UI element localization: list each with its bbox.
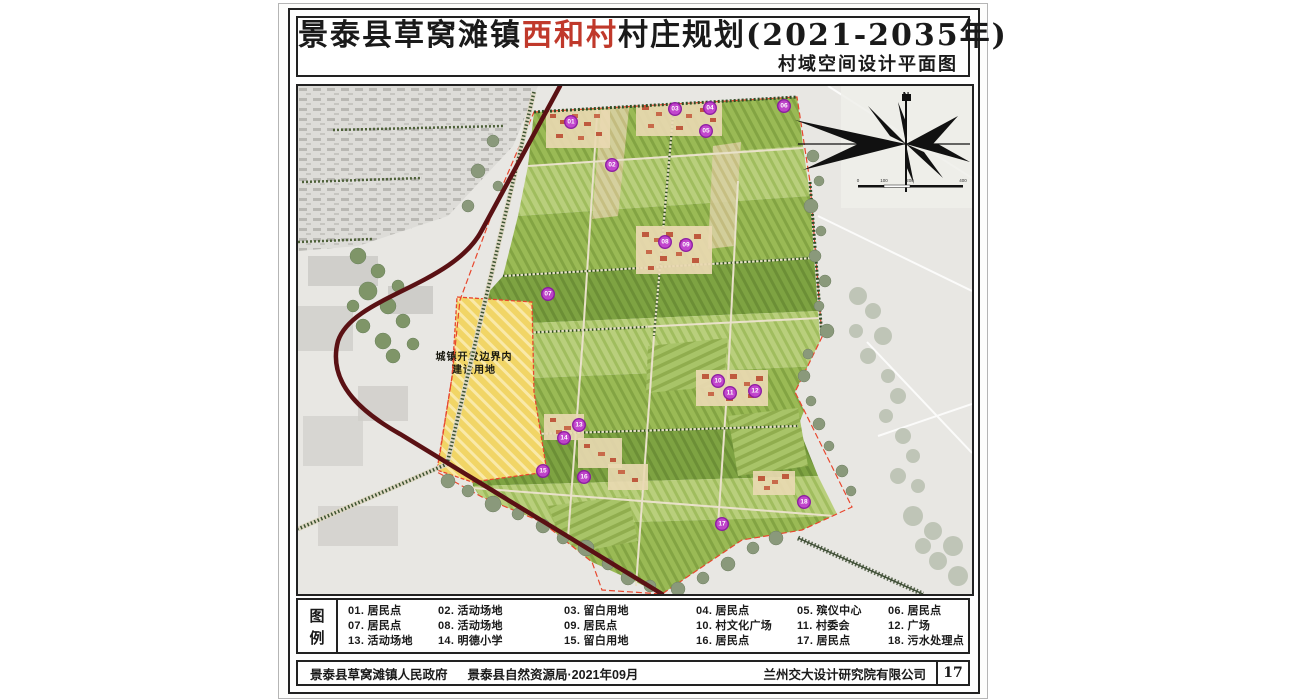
map-marker: 05	[700, 125, 713, 138]
svg-text:12: 12	[751, 388, 759, 395]
legend-item: 11. 村委会	[797, 619, 888, 634]
svg-text:15: 15	[539, 468, 547, 475]
legend-item: 16. 居民点	[696, 634, 797, 649]
map-marker: 09	[680, 239, 693, 252]
legend-item: 14. 明德小学	[438, 634, 564, 649]
svg-text:18: 18	[800, 499, 808, 506]
map-marker: 08	[659, 236, 672, 249]
footer-resources-bureau: 景泰县自然资源局·2021年09月	[468, 664, 639, 683]
compass-north-label: N	[903, 90, 910, 100]
legend-item: 06. 居民点	[888, 604, 968, 619]
legend-title: 图 例	[298, 600, 338, 652]
legend-item: 18. 污水处理点	[888, 634, 968, 649]
svg-text:16: 16	[580, 474, 588, 481]
legend-item: 03. 留白用地	[564, 604, 696, 619]
legend-item: 13. 活动场地	[348, 634, 438, 649]
legend-item: 05. 殡仪中心	[797, 604, 888, 619]
svg-text:07: 07	[544, 291, 552, 298]
legend-item: 08. 活动场地	[438, 619, 564, 634]
svg-text:13: 13	[575, 422, 583, 429]
map-marker: 02	[606, 159, 619, 172]
legend-item: 12. 广场	[888, 619, 968, 634]
legend-item: 04. 居民点	[696, 604, 797, 619]
svg-text:14: 14	[560, 435, 568, 442]
map-marker: 14	[558, 432, 571, 445]
footer-left: 景泰县草窝滩镇人民政府 景泰县自然资源局·2021年09月	[298, 664, 638, 683]
map-marker: 04	[704, 102, 717, 115]
legend-grid: 01. 居民点 02. 活动场地 03. 留白用地 04. 居民点 05. 殡仪…	[338, 600, 968, 652]
page-number: 17	[936, 662, 968, 684]
map-marker: 07	[542, 288, 555, 301]
title-suffix: 村庄规划(2021-2035年)	[618, 18, 1008, 53]
legend-item: 15. 留白用地	[564, 634, 696, 649]
map-marker: 16	[578, 471, 591, 484]
plan-sheet: 景泰县草窝滩镇西和村村庄规划(2021-2035年) 村域空间设计平面图	[0, 0, 1296, 700]
title-box: 景泰县草窝滩镇西和村村庄规划(2021-2035年) 村域空间设计平面图	[296, 16, 970, 77]
map-marker: 01	[565, 116, 578, 129]
map-panel: 城镇开发边界内 建设用地	[296, 84, 974, 596]
plan-subtitle: 村域空间设计平面图	[298, 53, 968, 75]
map-marker: 17	[716, 518, 729, 531]
map-marker: 10	[712, 375, 725, 388]
footer-design-institute: 兰州交大设计研究院有限公司	[763, 664, 936, 683]
legend-item: 09. 居民点	[564, 619, 696, 634]
svg-text:11: 11	[727, 390, 734, 397]
scale-label-100: 100	[880, 178, 888, 183]
legend-title-char-bottom: 例	[309, 627, 324, 648]
legend-item: 10. 村文化广场	[696, 619, 797, 634]
map-marker: 12	[749, 385, 762, 398]
svg-text:10: 10	[714, 378, 722, 385]
scale-label-400: 400	[959, 178, 967, 183]
svg-text:02: 02	[608, 162, 616, 169]
title-village-name: 西和村	[522, 18, 618, 53]
legend-item: 17. 居民点	[797, 634, 888, 649]
development-zone-label-line2: 建设用地	[451, 363, 496, 376]
legend-item: 01. 居民点	[348, 604, 438, 619]
footer-bar: 景泰县草窝滩镇人民政府 景泰县自然资源局·2021年09月 兰州交大设计研究院有…	[296, 660, 970, 686]
legend-box: 图 例 01. 居民点 02. 活动场地 03. 留白用地 04. 居民点 05…	[296, 598, 970, 654]
legend-item: 02. 活动场地	[438, 604, 564, 619]
svg-text:09: 09	[682, 242, 690, 249]
legend-title-char-top: 图	[309, 605, 324, 626]
map-marker: 06	[778, 100, 791, 113]
legend-item: 07. 居民点	[348, 619, 438, 634]
map-marker: 03	[669, 103, 682, 116]
village-plan-map: 城镇开发边界内 建设用地	[298, 86, 972, 594]
svg-text:08: 08	[661, 239, 669, 246]
map-marker: 11	[724, 387, 737, 400]
scale-label-200: 200	[906, 178, 914, 183]
map-marker: 15	[537, 465, 550, 478]
plan-title: 景泰县草窝滩镇西和村村庄规划(2021-2035年)	[298, 19, 968, 53]
svg-text:01: 01	[567, 119, 575, 126]
footer-government: 景泰县草窝滩镇人民政府	[310, 664, 448, 683]
svg-text:04: 04	[706, 105, 714, 112]
map-marker: 13	[573, 419, 586, 432]
svg-text:17: 17	[718, 521, 726, 528]
svg-text:06: 06	[780, 103, 788, 110]
title-prefix: 景泰县草窝滩镇	[298, 18, 522, 53]
svg-text:03: 03	[671, 106, 679, 113]
svg-text:05: 05	[702, 128, 710, 135]
map-marker: 18	[798, 496, 811, 509]
